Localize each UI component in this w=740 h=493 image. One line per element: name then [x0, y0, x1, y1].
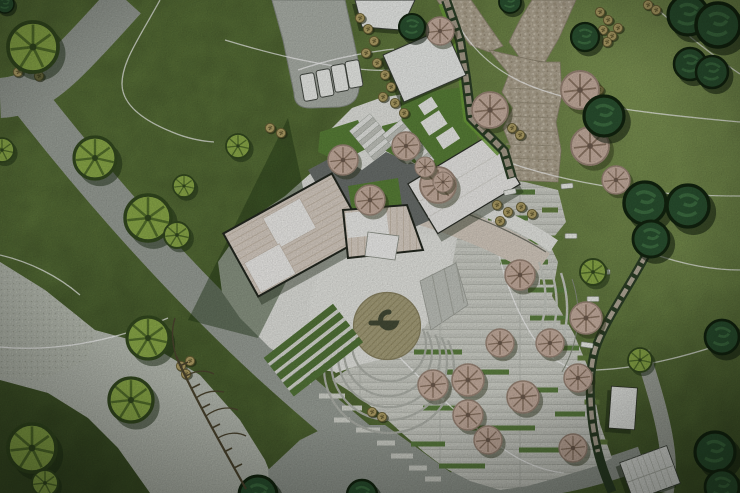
site-plan-model-photo	[0, 0, 740, 493]
site-plan	[0, 0, 740, 493]
vignette	[0, 0, 740, 493]
